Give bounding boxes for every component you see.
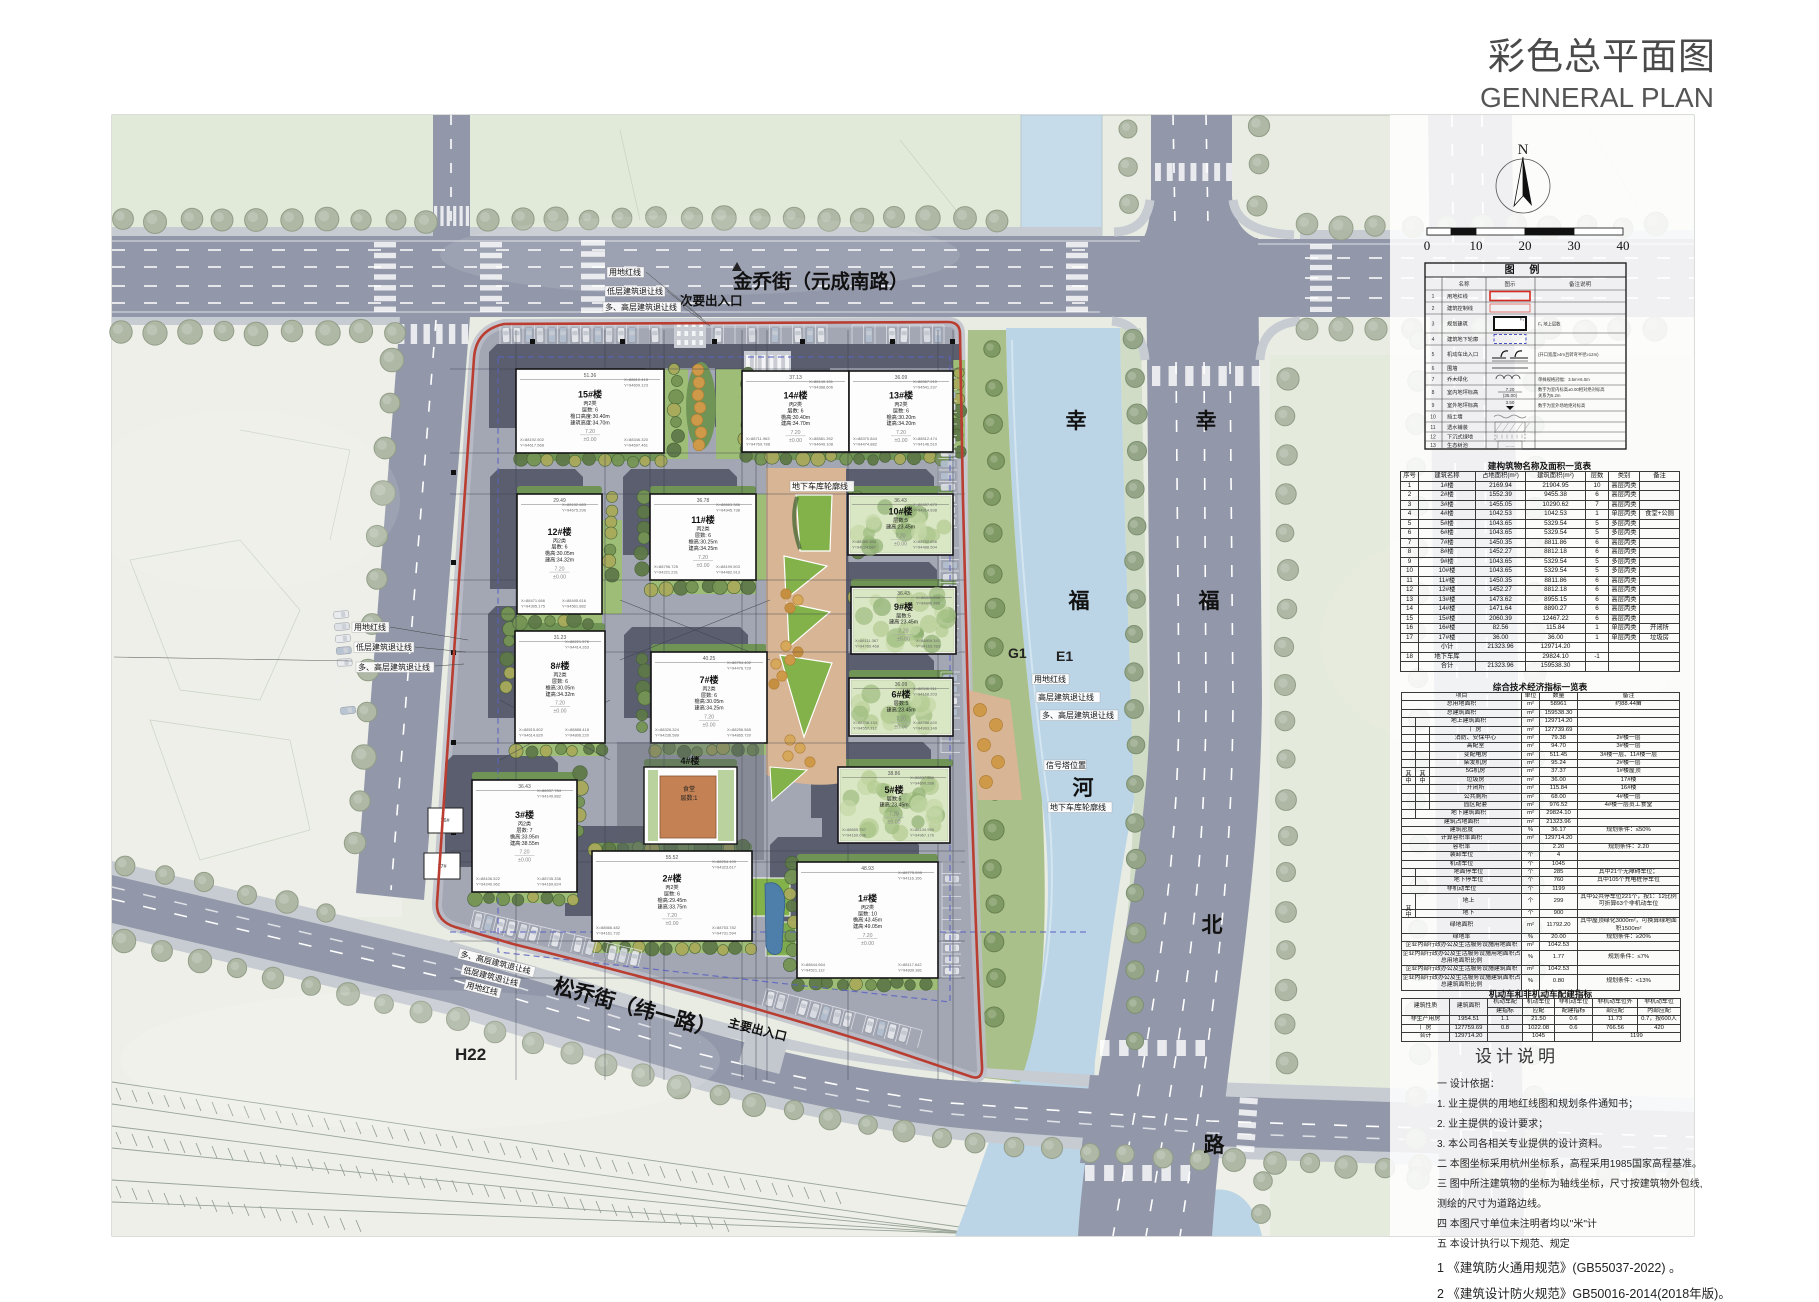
svg-text:地下车库轮廓线: 地下车库轮廓线 <box>792 481 848 491</box>
svg-text:丙2类: 丙2类 <box>553 671 566 679</box>
svg-text:Y=94614.820: Y=94614.820 <box>519 732 544 737</box>
svg-text:X=88254.109: X=88254.109 <box>712 859 737 864</box>
svg-text:檐高:33.95m: 檐高:33.95m <box>510 832 539 840</box>
svg-text:图 例: 图 例 <box>1505 263 1546 276</box>
svg-text:3: 3 <box>1432 322 1435 328</box>
svg-text:X=88111.367: X=88111.367 <box>855 638 879 643</box>
svg-text:30: 30 <box>1568 238 1581 253</box>
svg-text:7.20: 7.20 <box>554 566 564 572</box>
svg-text:X=88644.664: X=88644.664 <box>801 962 826 967</box>
svg-text:层数:5: 层数:5 <box>896 611 911 619</box>
svg-text:路: 路 <box>1204 1133 1226 1157</box>
svg-text:13#楼: 13#楼 <box>889 390 913 401</box>
svg-text:5#楼: 5#楼 <box>884 784 903 795</box>
svg-text:38.86: 38.86 <box>888 771 901 777</box>
svg-text:用地红线: 用地红线 <box>1034 674 1066 684</box>
svg-text:高层建筑退让线: 高层建筑退让线 <box>1038 692 1094 702</box>
svg-text:Y=94323.617: Y=94323.617 <box>712 864 737 869</box>
svg-text:Y=94414.263: Y=94414.263 <box>565 644 590 649</box>
svg-text:用地红线: 用地红线 <box>609 267 641 277</box>
svg-text:10: 10 <box>1470 238 1483 253</box>
svg-text:檐高:30.25m: 檐高:30.25m <box>688 538 717 546</box>
svg-text:8#楼: 8#楼 <box>550 660 569 671</box>
svg-text:0: 0 <box>1424 238 1431 253</box>
svg-text:Y=94675.299: Y=94675.299 <box>562 507 587 512</box>
svg-text:层数:1: 层数:1 <box>680 794 698 802</box>
svg-text:丙2类: 丙2类 <box>583 399 596 407</box>
svg-text:±0.00: ±0.00 <box>894 542 907 548</box>
svg-text:建筑控制线: 建筑控制线 <box>1447 304 1473 312</box>
svg-text:建高:34.32m: 建高:34.32m <box>545 556 574 564</box>
svg-text:±0.00: ±0.00 <box>666 921 679 927</box>
svg-text:建高:23.45m: 建高:23.45m <box>889 618 918 626</box>
svg-text:55.52: 55.52 <box>666 855 679 861</box>
svg-text:层数: 7: 层数: 7 <box>516 826 532 834</box>
svg-text:5: 5 <box>1432 352 1435 358</box>
svg-text:7.20: 7.20 <box>1506 387 1515 392</box>
svg-text:室内地坪标高: 室内地坪标高 <box>1447 388 1478 396</box>
svg-text:2#楼: 2#楼 <box>662 873 681 884</box>
svg-text:4: 4 <box>1432 337 1435 343</box>
svg-text:Y=94840.686: Y=94840.686 <box>916 600 941 605</box>
svg-text:层数: 6: 层数: 6 <box>582 405 598 413</box>
svg-text:Y=94168.203: Y=94168.203 <box>913 691 938 696</box>
svg-text:层数:5: 层数:5 <box>893 516 908 524</box>
svg-text:层数: 6: 层数: 6 <box>552 677 568 685</box>
svg-text:X=88346.311: X=88346.311 <box>913 686 937 691</box>
svg-text:Y=94697.461: Y=94697.461 <box>624 442 649 447</box>
svg-text:檐高:30.05m: 檐高:30.05m <box>545 549 574 557</box>
svg-text:信号塔位置: 信号塔位置 <box>1046 760 1086 770</box>
svg-text:X=88380.394: X=88380.394 <box>852 539 877 544</box>
svg-text:Y=94649.108: Y=94649.108 <box>809 441 834 446</box>
svg-text:7.20: 7.20 <box>519 850 529 856</box>
svg-text:(35.00): (35.00) <box>1503 393 1518 398</box>
svg-text:建高:23.45m: 建高:23.45m <box>886 706 915 714</box>
svg-text:±0.00: ±0.00 <box>895 438 908 444</box>
svg-text:檐高:30.05m: 檐高:30.05m <box>545 683 574 691</box>
svg-text:11#楼: 11#楼 <box>691 514 715 525</box>
svg-text:规划建筑: 规划建筑 <box>1447 320 1469 328</box>
svg-text:檐高:30.40m: 檐高:30.40m <box>781 413 810 421</box>
svg-text:图示: 图示 <box>1504 280 1516 288</box>
svg-text:X=88809.341: X=88809.341 <box>916 638 941 643</box>
svg-text:12: 12 <box>1430 435 1436 441</box>
svg-text:H22: H22 <box>455 1045 486 1064</box>
svg-text:X=88149.151: X=88149.151 <box>809 379 834 384</box>
svg-text:X=88792.656: X=88792.656 <box>913 539 938 544</box>
svg-text:备注说明: 备注说明 <box>1569 280 1592 288</box>
svg-text:生态树池: 生态树池 <box>1447 441 1468 449</box>
svg-text:X=88566.482: X=88566.482 <box>596 925 621 930</box>
svg-text:建高:49.05m: 建高:49.05m <box>853 922 882 930</box>
svg-text:X=88581.392: X=88581.392 <box>809 436 834 441</box>
svg-text:Y=94945.738: Y=94945.738 <box>716 507 741 512</box>
svg-text:7.20: 7.20 <box>667 913 677 919</box>
svg-text:±0.00: ±0.00 <box>697 563 710 569</box>
svg-text:G1: G1 <box>1008 645 1027 661</box>
svg-text:檐高:30.20m: 檐高:30.20m <box>886 413 915 421</box>
svg-text:Y=94914.838: Y=94914.838 <box>913 507 938 512</box>
svg-text:围墙: 围墙 <box>1447 364 1457 372</box>
svg-text:X=88326.324: X=88326.324 <box>655 727 680 732</box>
svg-text:Y=94993.149: Y=94993.149 <box>913 725 938 730</box>
svg-text:7#楼: 7#楼 <box>699 674 718 685</box>
svg-text:7.20: 7.20 <box>704 715 714 721</box>
svg-text:Y=94224.687: Y=94224.687 <box>852 544 877 549</box>
svg-text:10: 10 <box>1430 415 1436 421</box>
svg-text:食堂: 食堂 <box>683 785 695 793</box>
svg-text:F₁: F₁ <box>1520 317 1524 322</box>
svg-text:2: 2 <box>1432 306 1435 312</box>
svg-text:层数: 6: 层数: 6 <box>701 691 717 699</box>
svg-text:层数: 6: 层数: 6 <box>664 890 680 898</box>
svg-text:挡土墙: 挡土墙 <box>1447 413 1463 421</box>
svg-text:Y=94476.729: Y=94476.729 <box>727 665 752 670</box>
svg-text:建筑高度:34.70m: 建筑高度:34.70m <box>570 418 610 426</box>
svg-text:±0.00: ±0.00 <box>703 723 716 729</box>
svg-text:1#楼: 1#楼 <box>858 892 877 903</box>
svg-text:X=88708.134: X=88708.134 <box>853 720 878 725</box>
svg-text:1: 1 <box>1432 294 1435 300</box>
svg-text:X=88256.565: X=88256.565 <box>727 727 752 732</box>
svg-text:丙2类: 丙2类 <box>665 883 678 891</box>
svg-text:丙2类: 丙2类 <box>696 525 709 533</box>
svg-text:±0.00: ±0.00 <box>554 709 567 715</box>
svg-text:层数:5: 层数:5 <box>894 699 909 707</box>
svg-text:幸: 幸 <box>1066 409 1087 433</box>
svg-text:X=88117.642: X=88117.642 <box>898 962 922 967</box>
svg-text:11: 11 <box>1430 425 1435 431</box>
svg-text:37.13: 37.13 <box>789 375 802 381</box>
svg-text:福: 福 <box>1068 590 1090 613</box>
svg-text:7.20: 7.20 <box>585 429 595 435</box>
svg-text:±0.00: ±0.00 <box>518 858 531 864</box>
svg-text:X=88663.386: X=88663.386 <box>716 502 741 507</box>
svg-text:丙2类: 丙2类 <box>894 400 907 408</box>
svg-text:6: 6 <box>1432 366 1435 372</box>
svg-text:多、高层建筑退让线: 多、高层建筑退让线 <box>358 662 430 672</box>
svg-text:Y=94482.913: Y=94482.913 <box>716 569 741 574</box>
svg-text:X=88967.210: X=88967.210 <box>913 379 938 384</box>
svg-text:51.36: 51.36 <box>584 373 597 379</box>
svg-text:14#楼: 14#楼 <box>783 390 807 401</box>
svg-text:X=88711.963: X=88711.963 <box>746 436 770 441</box>
svg-text:9#楼: 9#楼 <box>894 601 913 612</box>
svg-text:下沉式绿地: 下沉式绿地 <box>1447 433 1473 441</box>
svg-text:12#楼: 12#楼 <box>547 526 571 537</box>
svg-text:X=88199.503: X=88199.503 <box>716 564 741 569</box>
svg-text:7.20: 7.20 <box>889 812 899 818</box>
svg-text:36.43: 36.43 <box>894 498 907 504</box>
svg-text:7.20: 7.20 <box>896 430 906 436</box>
svg-text:Y=94731.594: Y=94731.594 <box>712 930 737 935</box>
svg-text:36.43: 36.43 <box>518 784 531 790</box>
svg-text:建高:34.25m: 建高:34.25m <box>694 704 723 712</box>
svg-text:X=88512.474: X=88512.474 <box>913 436 938 441</box>
svg-text:Y=94609.123: Y=94609.123 <box>624 382 649 387</box>
svg-text:Y=94617.568: Y=94617.568 <box>520 442 545 447</box>
svg-text:3#楼: 3#楼 <box>515 809 534 820</box>
svg-text:±0.00: ±0.00 <box>861 941 874 947</box>
svg-text:Y=94169.824: Y=94169.824 <box>537 881 562 886</box>
svg-text:E1: E1 <box>1056 648 1073 664</box>
svg-text:X=88837.659: X=88837.659 <box>910 775 935 780</box>
svg-text:透水铺装: 透水铺装 <box>1447 423 1468 431</box>
svg-text:河: 河 <box>1073 777 1094 800</box>
svg-text:关系为5.2m: 关系为5.2m <box>1538 392 1561 399</box>
svg-text:X=88370.844: X=88370.844 <box>853 436 878 441</box>
svg-text:Y=94521.112: Y=94521.112 <box>801 967 825 972</box>
svg-text:X=88346.320: X=88346.320 <box>624 437 649 442</box>
svg-text:建高:34.70m: 建高:34.70m <box>781 419 810 427</box>
svg-text:次要出入口: 次要出入口 <box>680 293 743 308</box>
svg-text:Y=94221.231: Y=94221.231 <box>654 569 679 574</box>
svg-text:X=88937.784: X=88937.784 <box>537 788 562 793</box>
svg-text:X=88457.673: X=88457.673 <box>913 502 938 507</box>
svg-text:丙2类: 丙2类 <box>861 903 874 911</box>
svg-text:±0.00: ±0.00 <box>789 438 802 444</box>
svg-text:机动车出入口: 机动车出入口 <box>1447 350 1478 358</box>
svg-text:层数: 6: 层数: 6 <box>787 406 803 414</box>
svg-text:多、高层建筑退让线: 多、高层建筑退让线 <box>605 302 677 312</box>
svg-text:Y=94160.636: Y=94160.636 <box>842 832 867 837</box>
svg-text:X=88221.576: X=88221.576 <box>565 639 590 644</box>
svg-text:X=88134.959: X=88134.959 <box>910 827 935 832</box>
svg-text:Y=94561.882: Y=94561.882 <box>562 603 587 608</box>
svg-text:7.20: 7.20 <box>555 701 565 707</box>
svg-text:Y=94865.720: Y=94865.720 <box>727 732 752 737</box>
svg-text:Y=94395.175: Y=94395.175 <box>521 603 546 608</box>
svg-text:4#楼: 4#楼 <box>680 755 699 766</box>
svg-text:名称: 名称 <box>1458 280 1470 288</box>
svg-text:乔木绿化: 乔木绿化 <box>1447 375 1468 383</box>
svg-text:Y=94488.504: Y=94488.504 <box>913 544 938 549</box>
svg-text:建高:34.20m: 建高:34.20m <box>886 419 915 427</box>
svg-text:单株规格冠幅：3.5m×6.0m: 单株规格冠幅：3.5m×6.0m <box>1538 376 1590 383</box>
svg-text:丙2类: 丙2类 <box>553 536 566 544</box>
svg-text:层数: 6: 层数: 6 <box>551 543 567 551</box>
svg-text:8: 8 <box>1432 390 1435 396</box>
svg-text:Y=94967.176: Y=94967.176 <box>910 832 935 837</box>
svg-text:X=88655.757: X=88655.757 <box>842 827 867 832</box>
svg-text:X=88796.725: X=88796.725 <box>654 564 679 569</box>
svg-text:X=88745.336: X=88745.336 <box>537 876 562 881</box>
svg-text:X=88754.402: X=88754.402 <box>727 660 752 665</box>
svg-text:F₁ 地上层数: F₁ 地上层数 <box>1538 321 1561 328</box>
svg-text:— —: — — <box>1505 443 1514 448</box>
svg-text:Y=94146.510: Y=94146.510 <box>913 441 938 446</box>
svg-text:36.43: 36.43 <box>897 591 910 597</box>
svg-text:Y=94236.589: Y=94236.589 <box>655 732 680 737</box>
svg-text:13: 13 <box>1430 443 1436 449</box>
svg-text:建高:34.25m: 建高:34.25m <box>688 544 717 552</box>
svg-text:N: N <box>1518 142 1529 158</box>
svg-text:Y=94149.882: Y=94149.882 <box>537 793 562 798</box>
svg-text:48.93: 48.93 <box>861 866 874 872</box>
svg-text:用地红线: 用地红线 <box>354 622 386 632</box>
svg-text:±0.00: ±0.00 <box>584 437 597 443</box>
svg-text:檐高:30.05m: 檐高:30.05m <box>694 697 723 705</box>
svg-text:36.78: 36.78 <box>697 498 710 504</box>
svg-text:7.20: 7.20 <box>895 534 905 540</box>
svg-text:金乔街（元成南路）: 金乔街（元成南路） <box>732 270 909 293</box>
svg-text:36.09: 36.09 <box>895 375 908 381</box>
svg-text:X=88788.820: X=88788.820 <box>913 720 938 725</box>
svg-text:福: 福 <box>1198 590 1220 613</box>
svg-text:20: 20 <box>1519 238 1532 253</box>
svg-text:檐口高度:30.40m: 檐口高度:30.40m <box>570 412 610 420</box>
svg-text:用地红线: 用地红线 <box>1447 292 1468 300</box>
svg-text:建高:23.45m: 建高:23.45m <box>886 523 915 531</box>
svg-text:Y=94769.788: Y=94769.788 <box>746 441 771 446</box>
svg-text:北: 北 <box>1202 914 1223 937</box>
svg-text:建高:23.45m: 建高:23.45m <box>879 801 908 809</box>
svg-text:层数: 6: 层数: 6 <box>695 531 711 539</box>
svg-text:±0.00: ±0.00 <box>897 637 910 643</box>
svg-text:3.50: 3.50 <box>1506 400 1515 405</box>
svg-text:X=88106.522: X=88106.522 <box>476 876 501 881</box>
svg-text:7.20: 7.20 <box>790 430 800 436</box>
svg-text:层数: 10: 层数: 10 <box>858 909 877 917</box>
svg-text:幸: 幸 <box>1196 409 1217 433</box>
svg-text:数字为室外场地绝对标高: 数字为室外场地绝对标高 <box>1538 402 1586 409</box>
svg-text:丙2类: 丙2类 <box>702 684 715 692</box>
svg-text:Y=94240.962: Y=94240.962 <box>476 881 501 886</box>
svg-text:丙2类: 丙2类 <box>789 400 802 408</box>
svg-text:7.20: 7.20 <box>862 933 872 939</box>
svg-text:36.09: 36.09 <box>895 682 908 688</box>
svg-text:±0.00: ±0.00 <box>553 574 566 580</box>
svg-text:X=88495.616: X=88495.616 <box>562 598 587 603</box>
svg-text:X=88775.599: X=88775.599 <box>898 870 923 875</box>
svg-text:Y=94600.288: Y=94600.288 <box>910 780 935 785</box>
svg-text:建高:38.55m: 建高:38.55m <box>510 839 539 847</box>
svg-text:15#楼: 15#楼 <box>578 389 602 400</box>
svg-text:Y=94388.606: Y=94388.606 <box>809 384 834 389</box>
svg-text:X=88610.415: X=88610.415 <box>624 377 649 382</box>
svg-text:檐高:43.45m: 檐高:43.45m <box>853 916 882 924</box>
svg-text:40.25: 40.25 <box>703 656 716 662</box>
svg-text:建筑地下轮廓: 建筑地下轮廓 <box>1447 335 1478 343</box>
svg-text:40: 40 <box>1617 238 1630 253</box>
svg-text:低层建筑退让线: 低层建筑退让线 <box>607 286 663 296</box>
svg-text:Y=94769.468: Y=94769.468 <box>855 643 880 648</box>
svg-text:±0.00: ±0.00 <box>895 725 908 731</box>
svg-text:层数:5: 层数:5 <box>887 794 902 802</box>
svg-text:檐高:29.45m: 檐高:29.45m <box>657 896 686 904</box>
svg-text:X=88753.782: X=88753.782 <box>712 925 737 930</box>
svg-text:建高:33.75m: 建高:33.75m <box>657 902 686 910</box>
svg-text:低层建筑退让线: 低层建筑退让线 <box>356 642 412 652</box>
svg-text:X=88409.696: X=88409.696 <box>916 595 941 600</box>
svg-text:(开口宽度≥4m且转弯半径≥12m): (开口宽度≥4m且转弯半径≥12m) <box>1538 351 1599 358</box>
svg-text:Y=94474.882: Y=94474.882 <box>853 441 878 446</box>
svg-text:X=88152.683: X=88152.683 <box>562 502 587 507</box>
svg-text:数字为室内标高±0.00相对绝对标高: 数字为室内标高±0.00相对绝对标高 <box>1538 386 1605 393</box>
svg-text:Y=94161.732: Y=94161.732 <box>596 930 621 935</box>
svg-text:Y=94839.381: Y=94839.381 <box>898 967 923 972</box>
svg-text:7.20: 7.20 <box>898 629 908 635</box>
svg-text:Y=94806.220: Y=94806.220 <box>565 732 590 737</box>
svg-text:7.20: 7.20 <box>896 717 906 723</box>
svg-text:X=88471.666: X=88471.666 <box>521 598 546 603</box>
svg-text:7.20: 7.20 <box>698 555 708 561</box>
svg-text:7: 7 <box>1432 377 1435 383</box>
svg-text:Y=94163.783: Y=94163.783 <box>916 643 941 648</box>
svg-text:10#楼: 10#楼 <box>888 506 912 517</box>
svg-text:建高:34.32m: 建高:34.32m <box>545 690 574 698</box>
svg-text:X=88192.502: X=88192.502 <box>520 437 545 442</box>
svg-text:丙2类: 丙2类 <box>518 820 531 828</box>
svg-text:室外地坪标高: 室外地坪标高 <box>1447 401 1478 409</box>
svg-text:X=88515.802: X=88515.802 <box>519 727 544 732</box>
svg-text:Y=94116.106: Y=94116.106 <box>898 875 922 880</box>
svg-text:层数: 6: 层数: 6 <box>893 406 909 414</box>
svg-text:Y=94541.237: Y=94541.237 <box>913 384 938 389</box>
svg-text:±0.00: ±0.00 <box>888 820 901 826</box>
svg-text:9: 9 <box>1432 403 1435 409</box>
svg-text:地下车库轮廓线: 地下车库轮廓线 <box>1050 802 1106 812</box>
svg-text:6#楼: 6#楼 <box>891 689 910 700</box>
svg-text:X=88888.418: X=88888.418 <box>565 727 590 732</box>
svg-text:多、高层建筑退让线: 多、高层建筑退让线 <box>1042 710 1114 720</box>
svg-text:Y=94557.712: Y=94557.712 <box>853 725 878 730</box>
